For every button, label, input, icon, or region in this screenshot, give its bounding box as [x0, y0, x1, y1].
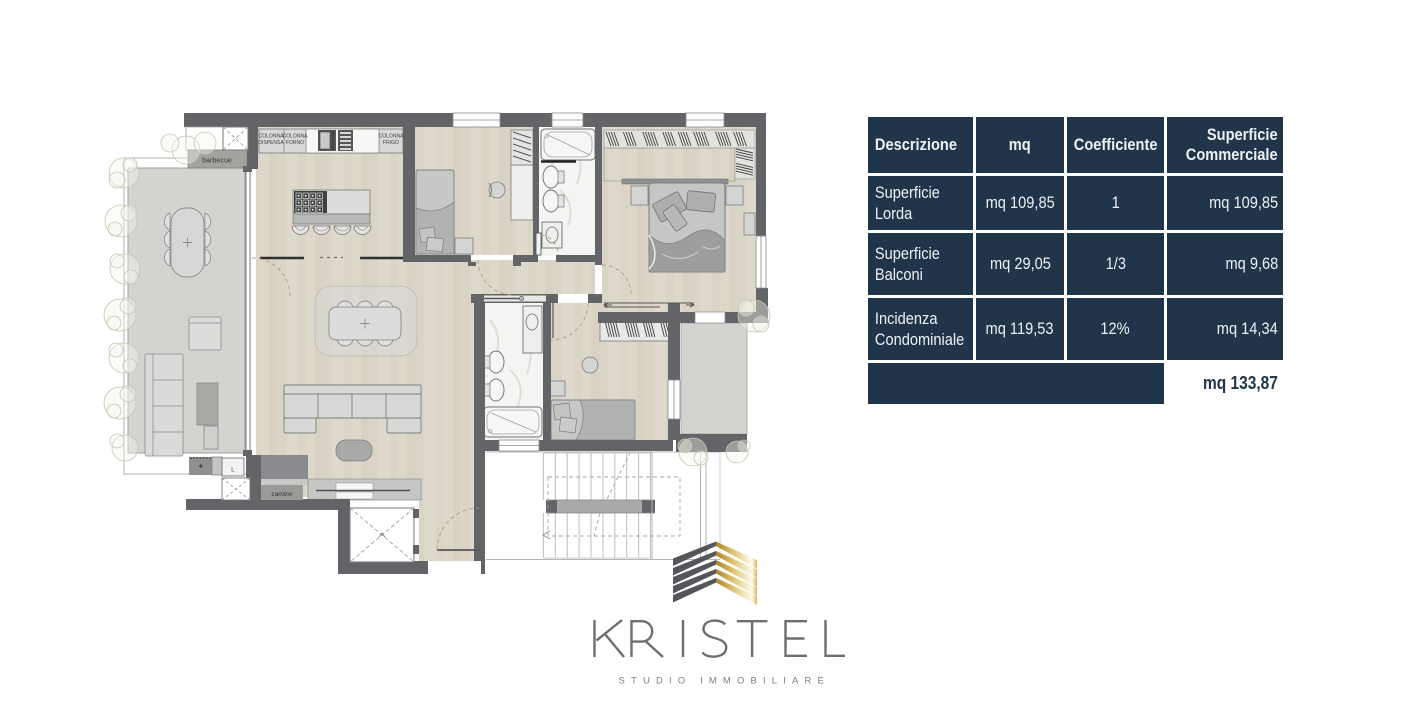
svg-text:FORNO: FORNO — [286, 140, 304, 146]
svg-text:L: L — [231, 467, 235, 474]
svg-text:STUDIO IMMOBILIARE: STUDIO IMMOBILIARE — [619, 676, 831, 687]
svg-text:COLONNA: COLONNA — [259, 134, 285, 140]
svg-text:barbecue: barbecue — [202, 157, 232, 165]
svg-text:FRIGO: FRIGO — [383, 140, 399, 146]
svg-text:DISPENSA: DISPENSA — [258, 140, 284, 146]
svg-text:camino: camino — [272, 491, 293, 498]
svg-text:COLONNA: COLONNA — [283, 134, 309, 140]
svg-text:COLONNA: COLONNA — [379, 134, 405, 140]
